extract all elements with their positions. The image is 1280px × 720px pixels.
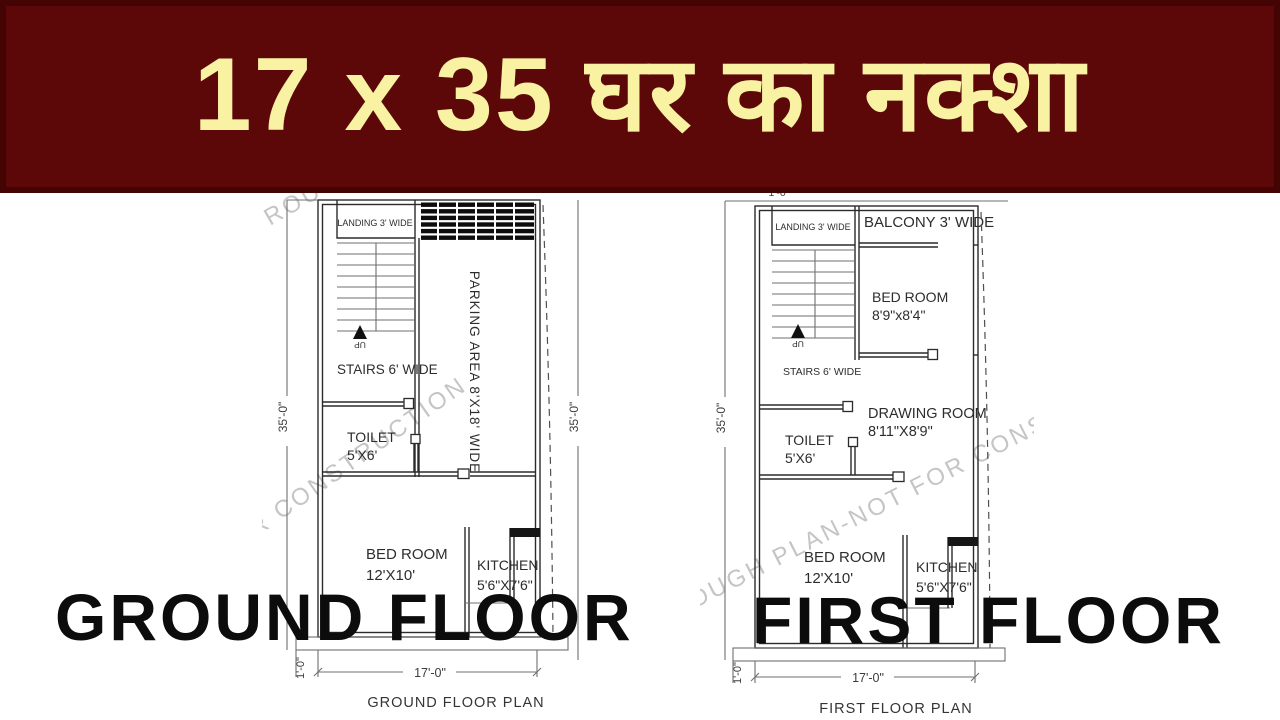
door-jamb — [893, 472, 904, 482]
door-jamb — [404, 399, 414, 409]
door-jamb — [411, 435, 420, 444]
ground-dim-left: 35'-0" — [276, 402, 290, 433]
ground-stair-treads — [337, 243, 415, 331]
first-bedroom1-label: BED ROOM — [872, 289, 948, 305]
first-drawing-size: 8'11"X8'9" — [868, 424, 933, 440]
first-floor-heading: FIRST FLOOR — [752, 587, 1225, 653]
ground-floor-heading: GROUND FLOOR — [55, 584, 634, 650]
banner-title-text: 17 x 35 घर का नक्शा — [194, 43, 1087, 147]
first-landing-label: LANDING 3' WIDE — [775, 222, 850, 232]
up-arrow-icon — [791, 324, 805, 338]
first-up-label: UP — [792, 339, 804, 349]
title-banner: 17 x 35 घर का नक्शा — [0, 0, 1280, 193]
first-stair-treads — [772, 250, 855, 338]
door-jamb-filled — [948, 537, 978, 546]
gate-shutter-hatch — [421, 202, 534, 240]
ground-dim-right: 35'-0" — [567, 402, 581, 433]
ground-toilet-size: 5'X6' — [347, 447, 377, 463]
door-jamb-filled — [510, 528, 540, 537]
door-jamb — [928, 350, 938, 360]
door-jamb — [849, 438, 858, 447]
first-drawing-label: DRAWING ROOM — [868, 406, 987, 422]
first-dim-plinth: 1'-0" — [732, 662, 744, 684]
ground-landing-label: LANDING 3' WIDE — [337, 218, 412, 228]
ground-dim-plinth: 1'-0" — [295, 657, 307, 679]
ground-kitchen-label: KITCHEN — [477, 557, 538, 573]
first-bedroom1-size: 8'9"x8'4" — [872, 307, 925, 323]
first-dim-bottom: 17'-0" — [852, 671, 884, 685]
first-balcony-label: BALCONY 3' WIDE — [864, 214, 994, 231]
ground-bedroom-label: BED ROOM — [366, 546, 448, 563]
first-dim-left: 35'-0" — [714, 403, 728, 434]
ground-toilet-label: TOILET — [347, 429, 396, 445]
first-floor-plan-caption: FIRST FLOOR PLAN — [819, 701, 973, 717]
ground-parking-label: PARKING AREA 8'X18' WIDE — [467, 271, 482, 473]
first-stairs-label: STAIRS 6' WIDE — [783, 366, 861, 378]
door-jamb — [843, 402, 853, 412]
ground-up-label: UP — [354, 340, 366, 350]
ground-dashed-boundary — [543, 205, 553, 637]
up-arrow-icon — [353, 325, 367, 339]
first-toilet-size: 5'X6' — [785, 450, 815, 466]
ground-dim-bottom: 17'-0" — [414, 666, 446, 680]
first-bedroom2-label: BED ROOM — [804, 549, 886, 566]
ground-stairs-label: STAIRS 6' WIDE — [337, 362, 438, 377]
first-kitchen-label: KITCHEN — [916, 559, 977, 575]
ground-floor-plan-caption: GROUND FLOOR PLAN — [367, 695, 544, 711]
first-toilet-label: TOILET — [785, 432, 834, 448]
